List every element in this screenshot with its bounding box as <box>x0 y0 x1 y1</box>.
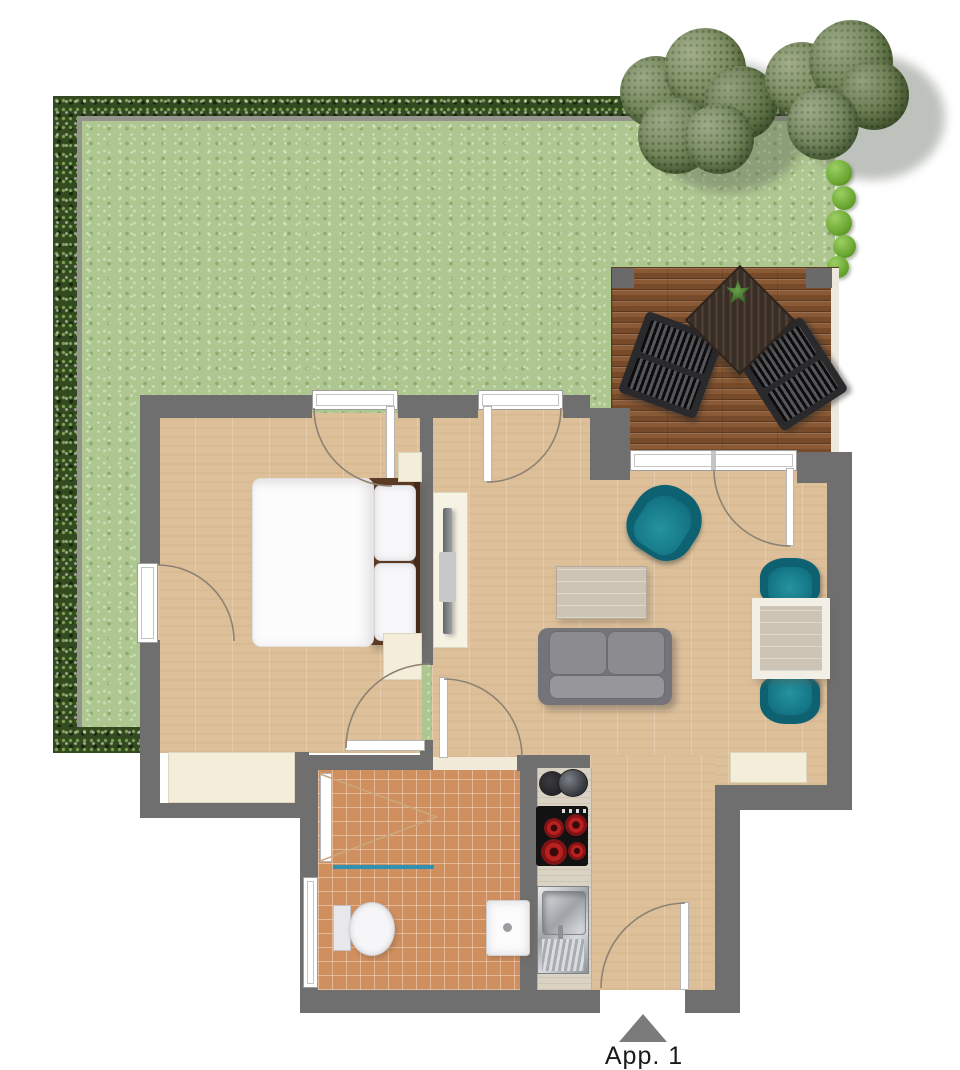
wall <box>300 990 600 1013</box>
hedge-bottom <box>53 727 145 753</box>
kitchen-sink <box>537 886 589 974</box>
tree-icon <box>765 20 915 178</box>
wall <box>140 395 312 418</box>
wall <box>345 755 433 770</box>
coffee-table <box>556 566 647 619</box>
bush-icon <box>826 160 852 186</box>
door-leaf <box>439 677 448 758</box>
bush-icon <box>832 186 856 210</box>
wall <box>295 755 345 770</box>
bed-pillow <box>374 485 416 561</box>
cooktop <box>536 806 588 866</box>
wall <box>140 640 160 803</box>
washbasin <box>486 900 530 956</box>
wardrobe <box>398 452 422 482</box>
terrace-edge <box>831 268 839 455</box>
wardrobe <box>168 752 295 803</box>
door-leaf <box>386 406 395 486</box>
bathroom-floor <box>318 768 520 990</box>
door-leaf <box>786 468 794 546</box>
wall <box>715 785 852 810</box>
bedroom-side-door <box>137 563 158 643</box>
tree-icon <box>612 28 780 186</box>
wall <box>432 395 478 418</box>
floor-plan: App. 1 <box>0 0 960 1070</box>
bathroom-window <box>303 877 318 988</box>
coffee-machine-icon <box>558 769 588 797</box>
dining-chair <box>760 676 820 724</box>
bathroom-doorway <box>433 757 517 770</box>
wall <box>520 770 537 990</box>
dining-table <box>752 598 830 679</box>
wall <box>140 395 160 565</box>
tv-stand <box>439 552 456 602</box>
door-leaf <box>483 406 492 482</box>
wall <box>715 810 740 1013</box>
bush-icon <box>833 235 856 258</box>
wall <box>563 395 590 418</box>
bed-pillow <box>374 563 416 641</box>
wall <box>590 408 630 480</box>
wall <box>398 395 432 418</box>
wall <box>827 452 852 785</box>
terrace-post <box>612 268 634 288</box>
sofa <box>538 628 672 705</box>
toilet-bowl <box>349 902 395 956</box>
entry-hall-floor <box>590 755 715 990</box>
wall <box>140 803 307 818</box>
entry-label: App. 1 <box>594 1042 694 1070</box>
terrace-post <box>806 268 832 288</box>
bed-duvet <box>252 478 374 647</box>
door-leaf <box>680 902 689 990</box>
wardrobe <box>383 633 422 680</box>
entry-arrow-icon <box>619 1014 667 1042</box>
shower-panel <box>320 773 332 862</box>
wall <box>797 452 852 483</box>
hedge-left <box>53 96 79 753</box>
door-leaf <box>345 740 425 751</box>
bush-icon <box>826 210 852 236</box>
entry-doorway <box>600 990 685 1013</box>
radiator <box>730 752 807 783</box>
terrace-window-door <box>630 450 797 471</box>
